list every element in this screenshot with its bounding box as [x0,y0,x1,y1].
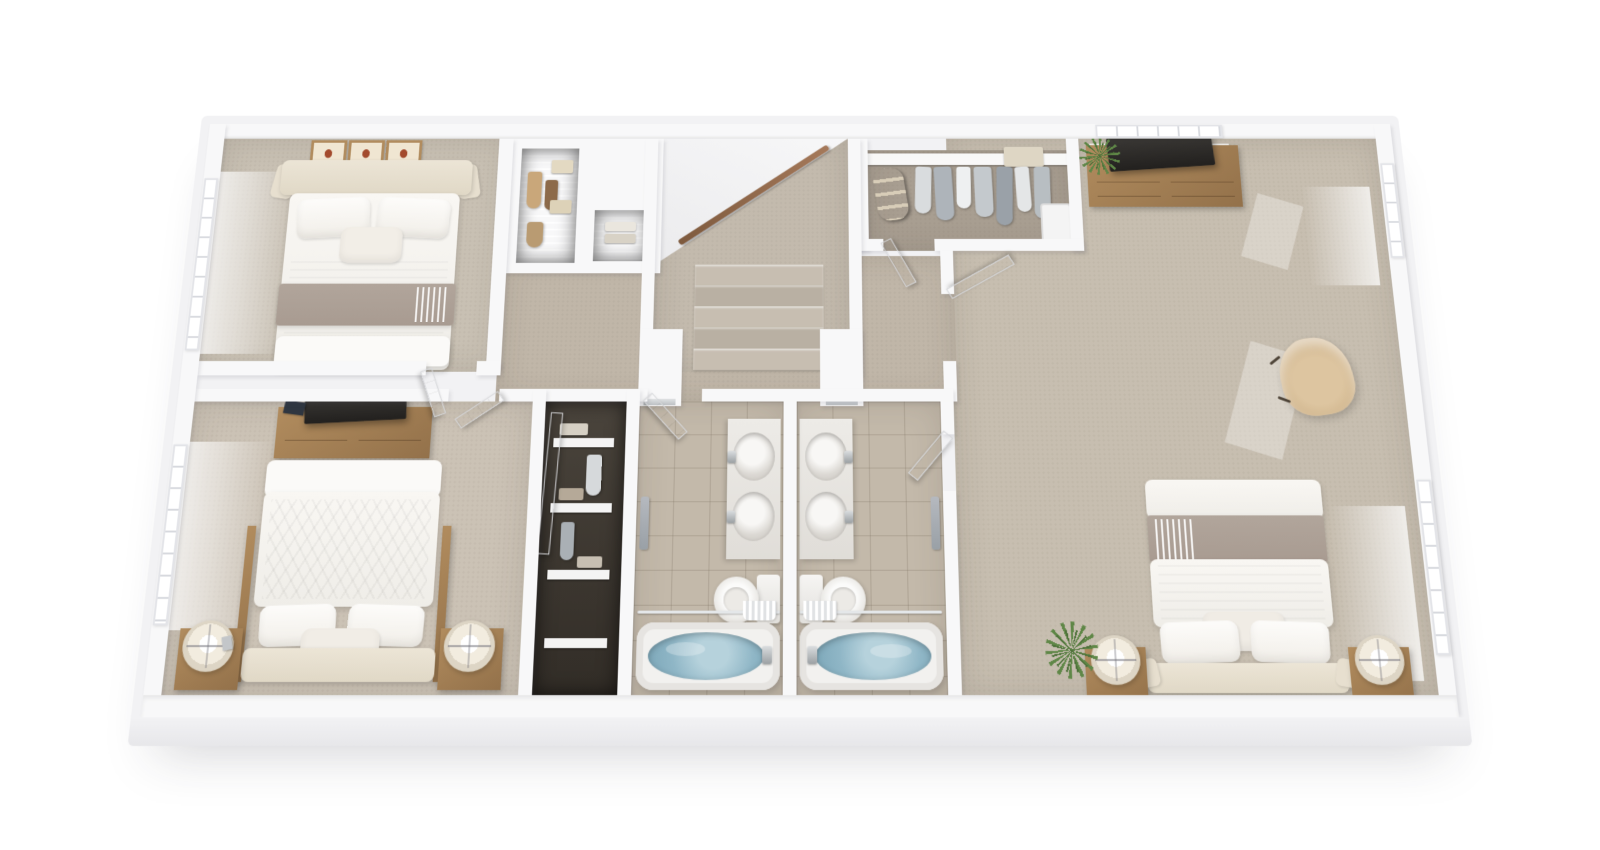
art-figure [321,148,335,161]
headboard [1146,663,1350,693]
faucet [727,451,736,463]
water-ripple [870,644,912,658]
shower-curtain [803,601,836,621]
bed [239,460,448,692]
hanging-garment [996,166,1012,225]
room-walk-in-closet [868,150,1072,251]
storage-box [551,160,573,173]
dresser-drawers [357,425,422,454]
hanging-garment [1014,166,1032,212]
wall [934,239,1084,251]
floor-slab [128,116,1473,746]
room-bedroom-front [198,139,510,372]
sink [805,433,847,481]
closet-block [502,139,663,274]
window [1095,125,1223,138]
floorplan-3d-scene [128,116,1473,746]
towel-bar [639,497,649,550]
shower-curtain [743,601,776,621]
wall [940,402,954,435]
towel-bar [931,497,941,550]
folded-linens [558,488,583,500]
faucet [845,511,854,523]
faucet [727,511,736,523]
wire-shelf [547,570,609,580]
duvet-texture [262,499,432,599]
headboard [279,160,473,195]
wire-shelf [550,503,612,512]
folded-linens [577,556,603,568]
dresser-drawers [1170,168,1236,201]
hanging-garment [915,166,932,213]
water-ripple [666,642,706,656]
hanging-garment [933,166,955,220]
art-figure [359,148,373,161]
art-figure [397,148,411,161]
throw-fringe [415,287,451,322]
room-linen-closet [593,210,649,261]
wire-shelf [553,438,614,447]
book [283,400,306,415]
hanging-garment [526,172,542,209]
picture-frame [221,635,232,651]
window-light-patch [1301,187,1380,286]
wall [702,389,954,402]
exterior-wall-bottom [141,695,1460,719]
hanging-garment [585,455,602,496]
room-bedroom-rear [161,402,532,696]
stair-step [694,327,824,348]
storage-box [1004,147,1044,167]
folded-linens [605,222,636,231]
stair-step [693,349,824,370]
pillow [1159,620,1242,664]
plant-fronds [1084,142,1116,170]
wall [195,389,449,402]
stair-step [695,265,824,286]
pillow [1250,620,1331,664]
storage-box [549,200,571,213]
stair-ceiling-slope [655,139,849,265]
tub-faucet [807,646,817,664]
throw-blanket [275,284,456,326]
wall [476,361,501,375]
sink [733,433,775,481]
wire-shelf [544,638,607,648]
folded-linens [559,423,588,435]
throw-fringe [1155,519,1194,559]
duvet [253,492,440,607]
wall [198,361,427,375]
dresser-drawers [283,425,348,454]
room-hall-closet [532,402,627,696]
sink [805,492,847,541]
room-bathroom-right [797,402,949,696]
hanging-garment [973,167,994,217]
bathtub [800,622,945,690]
duvet-foot-fold [1145,480,1324,519]
stair-step [694,285,823,306]
bed [262,160,473,370]
room-reach-in-closet [516,149,580,263]
bath-water [815,632,932,680]
sink [732,492,775,541]
throw-blanket [1147,515,1328,563]
slab-edge [128,717,1473,746]
hanging-garment [526,222,544,248]
headboard [240,648,436,682]
wall-bath-divider [783,402,797,696]
pillow [338,227,403,263]
tub-faucet [762,646,772,664]
stair-step [694,306,824,327]
bed [1139,480,1347,695]
room-bathroom-left [631,402,784,696]
hanging-garment [956,167,971,209]
folded-linens [604,234,635,243]
hanging-garment [560,522,575,560]
floorplan-stage [0,0,1600,850]
sunlight-patch [1241,193,1303,270]
bathtub [635,622,780,690]
bath-water [647,632,764,680]
duffel-bag [871,167,910,222]
faucet [844,451,853,463]
